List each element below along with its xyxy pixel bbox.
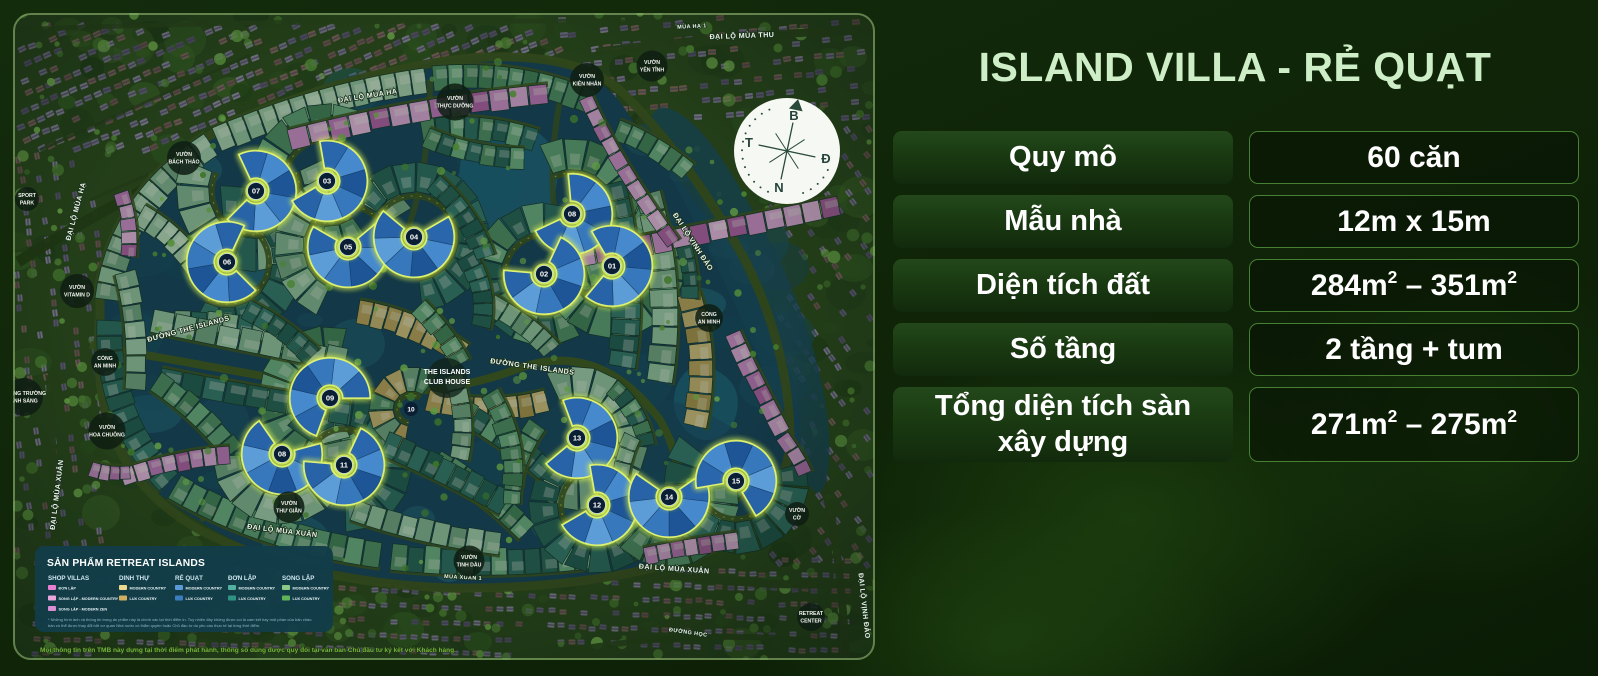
svg-text:CỔNG: CỔNG [701,311,717,318]
svg-text:CENTER: CENTER [800,618,822,624]
svg-text:05: 05 [344,243,352,252]
svg-text:N: N [774,180,783,195]
svg-text:MODERN COUNTRY: MODERN COUNTRY [293,586,330,590]
svg-text:MODERN COUNTRY: MODERN COUNTRY [239,586,276,590]
svg-text:06: 06 [223,258,231,267]
svg-text:04: 04 [410,233,419,242]
svg-text:YÊN TĨNH: YÊN TĨNH [640,65,664,73]
svg-text:VƯỜN: VƯỜN [644,58,660,66]
svg-text:01: 01 [608,262,616,271]
svg-text:KIÊN NHẪN: KIÊN NHẪN [573,79,602,87]
svg-text:SONG LẬP: SONG LẬP [282,575,314,582]
svg-text:CLUB HOUSE: CLUB HOUSE [424,379,471,386]
svg-text:HOA CHUÔNG: HOA CHUÔNG [89,430,125,438]
svg-text:10: 10 [407,407,415,414]
svg-text:AN MINH: AN MINH [94,363,116,369]
svg-text:08: 08 [568,210,576,219]
svg-text:LUX COUNTRY: LUX COUNTRY [293,597,321,601]
svg-text:SONG LẬP - MODERN ZEN: SONG LẬP - MODERN ZEN [59,606,108,611]
svg-text:09: 09 [326,394,334,403]
svg-text:MODERN COUNTRY: MODERN COUNTRY [130,586,167,590]
svg-text:THỰC DƯỠNG: THỰC DƯỠNG [437,102,474,109]
svg-text:02: 02 [540,270,548,279]
svg-text:12: 12 [593,501,601,510]
svg-text:SPORT: SPORT [18,193,37,199]
svg-text:CỜ: CỜ [793,513,802,521]
svg-text:MODERN COUNTRY: MODERN COUNTRY [186,586,223,590]
svg-text:VƯỜN: VƯỜN [281,499,297,507]
svg-text:PARK: PARK [20,200,35,206]
svg-text:VƯỜN: VƯỜN [789,506,805,514]
svg-text:VITAMIN D: VITAMIN D [64,292,90,298]
svg-text:07: 07 [252,187,260,196]
svg-text:Mọi thông tin trên TMB này dựn: Mọi thông tin trên TMB này dựng tại thời… [40,645,456,654]
svg-text:VƯỜN: VƯỜN [461,553,477,561]
svg-text:Đ: Đ [821,151,830,166]
svg-text:RẺ QUẠT: RẺ QUẠT [175,575,203,582]
svg-text:BÁCH THẢO: BÁCH THẢO [168,158,199,165]
svg-text:ĐƠN LẬP: ĐƠN LẬP [59,585,77,590]
svg-text:CỔNG: CỔNG [97,355,113,362]
svg-text:RETREAT: RETREAT [799,611,824,617]
svg-text:VƯỜN: VƯỜN [69,283,85,291]
svg-text:THƯ GIÃN: THƯ GIÃN [276,507,302,514]
svg-text:THE ISLANDS: THE ISLANDS [424,369,471,376]
svg-text:VƯỜN: VƯỜN [99,423,115,431]
svg-text:VƯỜN: VƯỜN [447,94,463,102]
svg-text:VƯỜN: VƯỜN [579,72,595,80]
svg-text:* Những hình ảnh và thông tin: * Những hình ảnh và thông tin trong ấn p… [48,617,312,622]
svg-text:AN MINH: AN MINH [698,319,720,325]
svg-text:B: B [789,108,798,123]
svg-text:TINH DẦU: TINH DẦU [457,561,482,568]
svg-text:T: T [745,135,753,150]
svg-text:ĐƠN LẬP: ĐƠN LẬP [228,575,256,582]
svg-text:bán có thể được thay đổi bởi c: bán có thể được thay đổi bởi cơ quan Nhà… [48,623,260,628]
svg-text:08: 08 [278,450,286,459]
svg-text:14: 14 [665,493,674,502]
svg-text:SHOP VILLAS: SHOP VILLAS [48,575,89,582]
svg-text:03: 03 [323,177,331,186]
svg-text:13: 13 [573,434,581,443]
svg-text:LUX COUNTRY: LUX COUNTRY [130,597,158,601]
svg-text:VƯỜN: VƯỜN [176,150,192,158]
svg-text:LUX COUNTRY: LUX COUNTRY [239,597,267,601]
svg-text:DINH THỰ: DINH THỰ [119,575,150,582]
svg-text:SONG LẬP - MODERN COUNTRY: SONG LẬP - MODERN COUNTRY [59,596,119,601]
svg-text:15: 15 [732,477,740,486]
svg-text:11: 11 [340,461,348,470]
svg-text:LUX COUNTRY: LUX COUNTRY [186,597,214,601]
svg-text:SẢN PHẨM RETREAT ISLANDS: SẢN PHẨM RETREAT ISLANDS [47,556,205,569]
